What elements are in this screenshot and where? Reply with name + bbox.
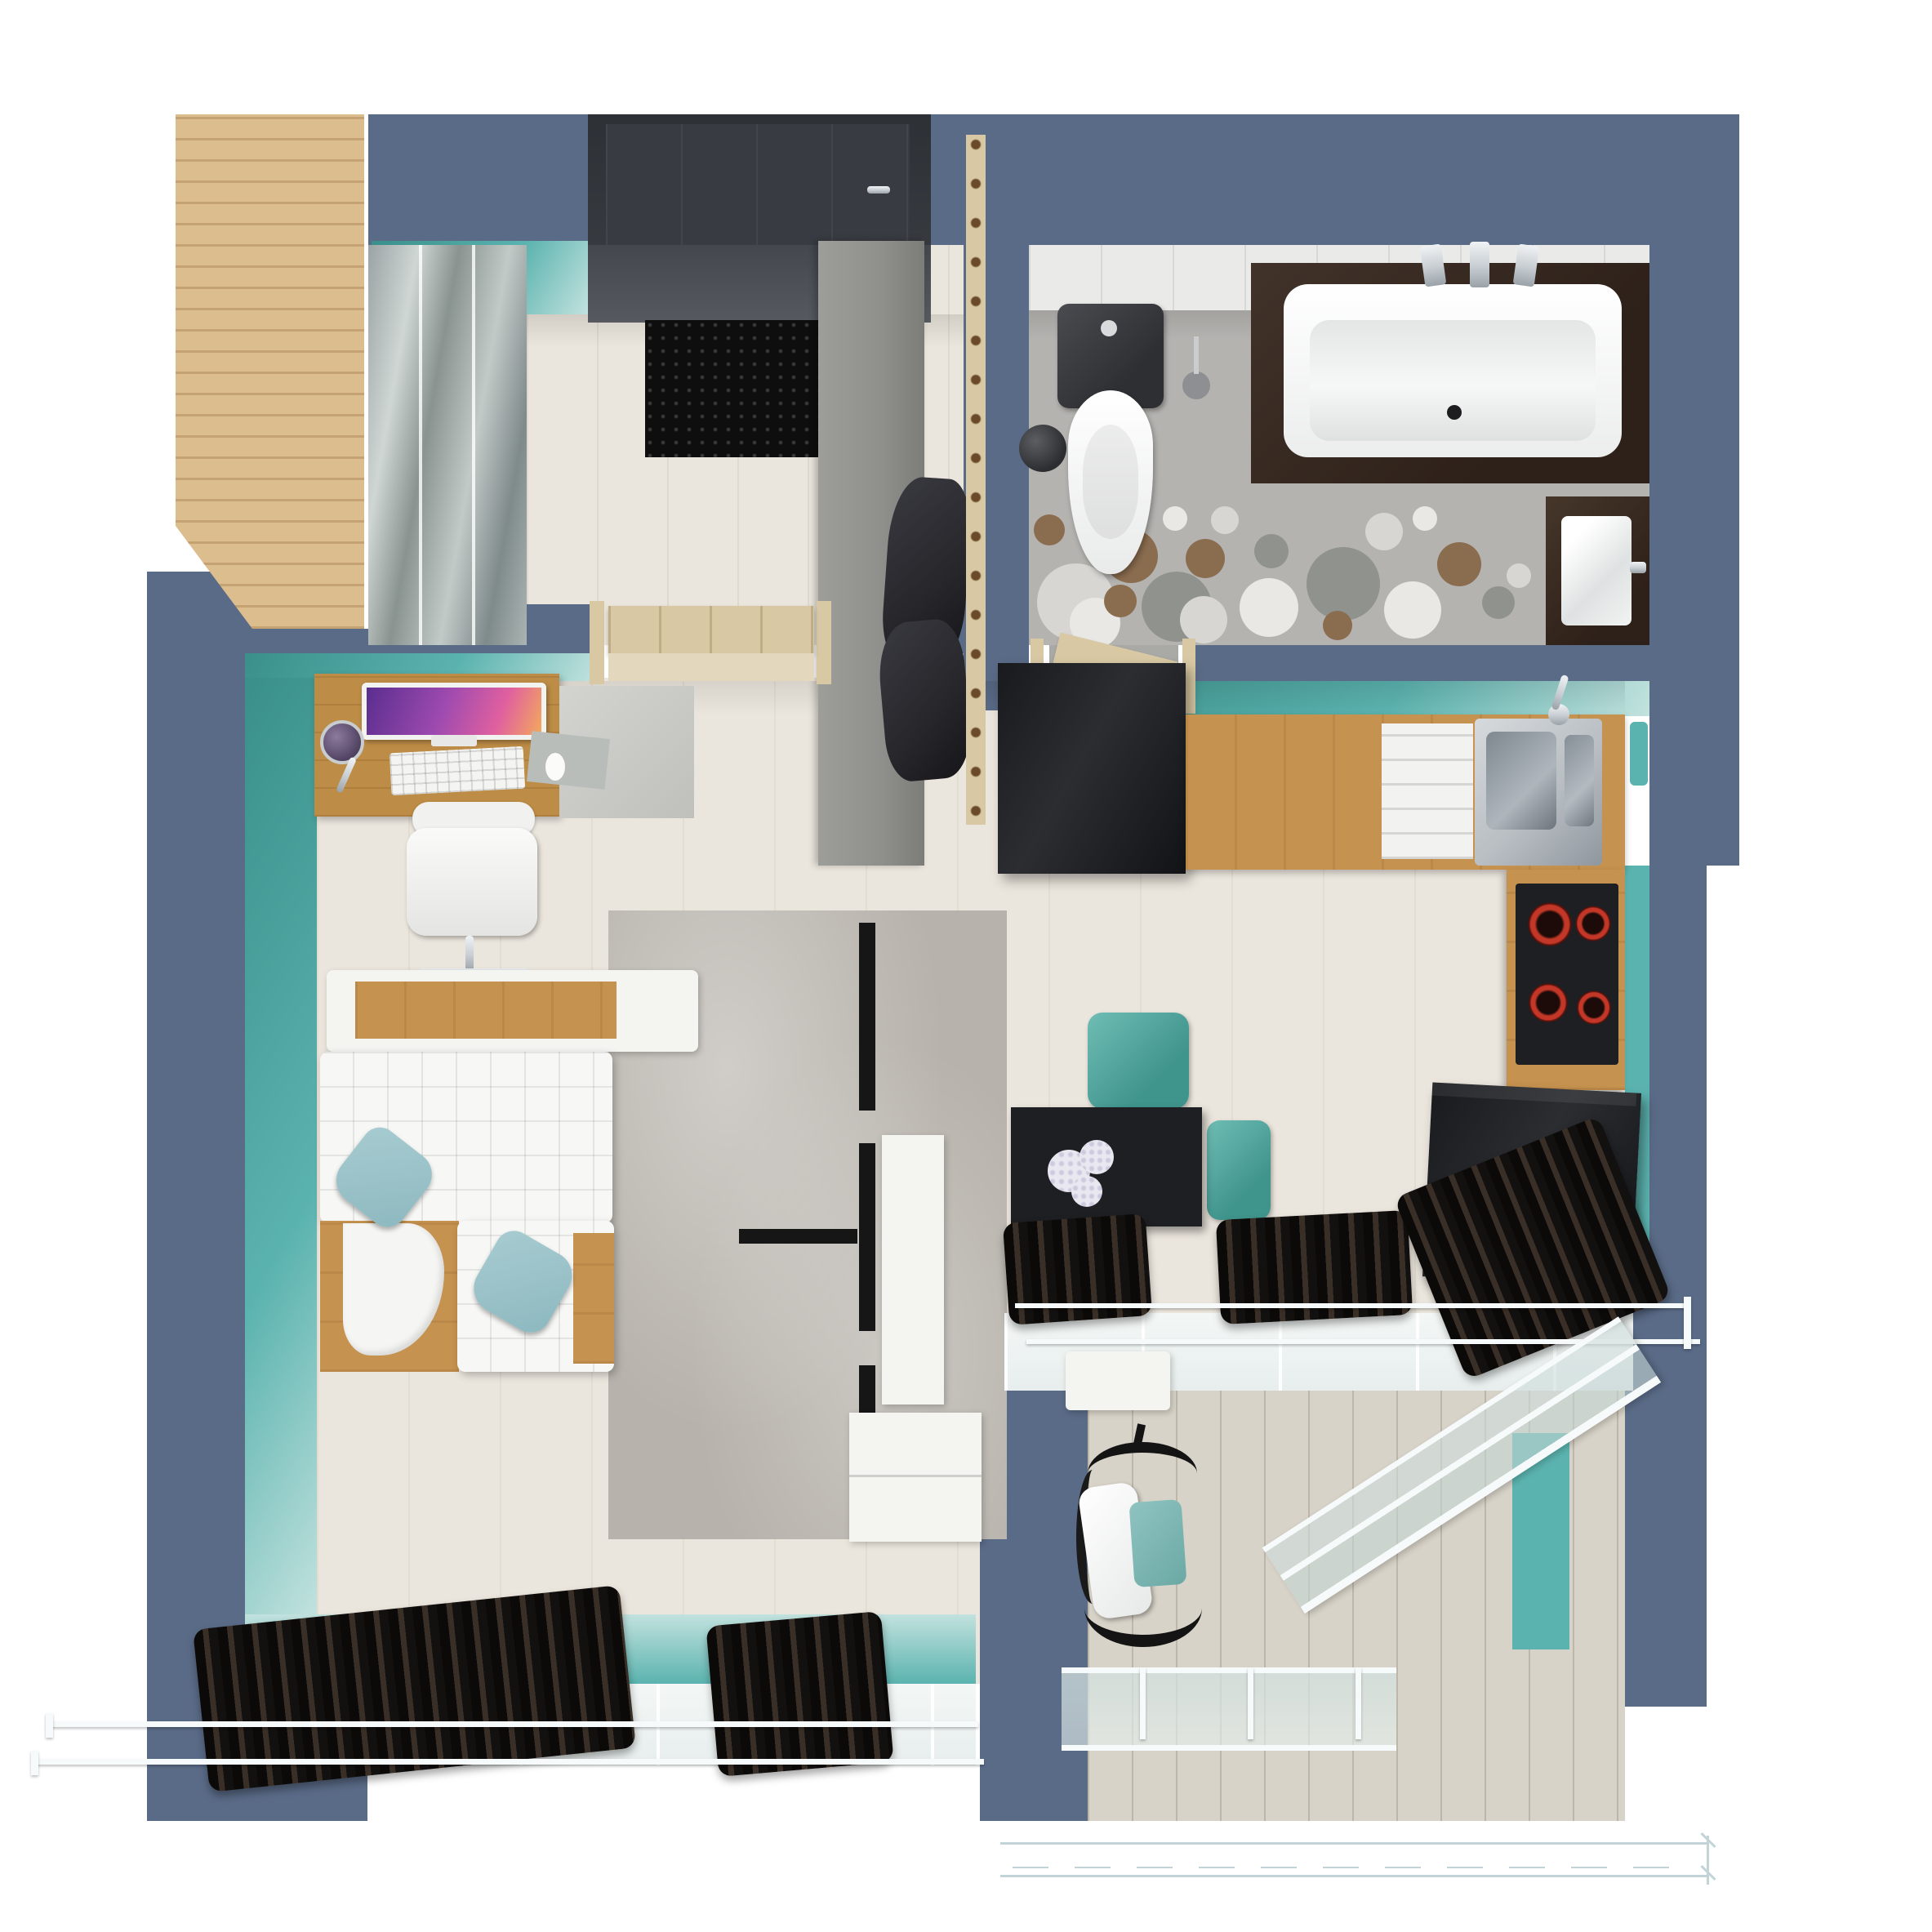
- bath-floor-circle: [1437, 542, 1481, 586]
- mirror-divider-2: [472, 245, 475, 645]
- entry-door-handle-icon: [867, 186, 890, 194]
- door-frame-left: [590, 601, 604, 684]
- bath-floor-circle: [1323, 611, 1352, 640]
- wood-wardrobe: [176, 114, 367, 629]
- bath-floor-circle: [1482, 586, 1515, 619]
- armchair-armrest: [573, 1233, 614, 1364]
- top-wall-left-segment: [367, 114, 588, 245]
- rod-bracket-icon-2: [31, 1751, 38, 1775]
- office-chair-seat: [407, 828, 537, 936]
- mirror-wardrobe: [368, 245, 527, 645]
- flower-centerpiece-2: [1080, 1140, 1114, 1174]
- dining-rod: [1015, 1303, 1689, 1308]
- toilet-brush: [1182, 372, 1210, 399]
- console-wood-inset: [355, 982, 617, 1039]
- living-teal-left: [245, 678, 317, 1617]
- dining-rod-bracket-icon: [1684, 1297, 1691, 1349]
- bath-floor-circle: [1254, 534, 1289, 568]
- balcony-railing-bottom: [1062, 1667, 1396, 1751]
- door-frame-right: [817, 601, 831, 684]
- office-chair-post: [465, 936, 474, 972]
- keyboard: [390, 746, 525, 796]
- desk-lamp-icon: [320, 720, 364, 764]
- vanity-sink: [1561, 516, 1632, 625]
- tv-panel-white: [882, 1135, 944, 1404]
- railing-post-icon: [1140, 1667, 1146, 1739]
- right-wall-bathroom: [1649, 114, 1739, 866]
- dimension-line-2: [1000, 1875, 1709, 1877]
- bath-floor-circle: [1384, 581, 1441, 639]
- bath-floor-circle: [1365, 513, 1403, 550]
- entry-door: [606, 124, 910, 256]
- curtain-dining-left: [1003, 1213, 1152, 1325]
- rug-stripe: [859, 1143, 875, 1331]
- hanging-coats-2: [875, 617, 975, 783]
- hanging-chair-blanket: [1128, 1499, 1186, 1587]
- curtain-rod: [47, 1721, 978, 1727]
- hob-burner: [1522, 977, 1574, 1029]
- sideboard-white: [849, 1413, 982, 1542]
- hob-burner: [1571, 985, 1617, 1031]
- open-door-leaf: [608, 606, 814, 653]
- bath-bottom-wall: [1192, 645, 1649, 683]
- bath-floor-circle: [1180, 596, 1227, 643]
- flower-centerpiece-3: [1071, 1176, 1102, 1207]
- dimension-line: [1000, 1842, 1709, 1845]
- mouse: [545, 753, 565, 781]
- floor-plan-canvas: [0, 0, 1932, 1932]
- sideboard-seam: [849, 1475, 982, 1477]
- curtain-rod-2: [33, 1759, 984, 1765]
- coat-rack: [966, 135, 986, 825]
- bath-floor-circle: [1240, 578, 1298, 637]
- bath-floor-circle: [1507, 563, 1531, 588]
- balcony-cabinet-white: [1066, 1351, 1170, 1410]
- sink-basin: [1486, 732, 1556, 830]
- waste-bin: [1019, 425, 1066, 472]
- flush-button-icon: [1101, 320, 1117, 336]
- dish-drainer: [1382, 723, 1473, 859]
- fridge: [998, 663, 1186, 874]
- bath-floor-circle: [1163, 506, 1187, 531]
- door-threshold: [608, 653, 814, 681]
- mouse-pad: [527, 731, 610, 790]
- bath-floor-circle: [1211, 506, 1239, 534]
- rod-bracket-icon: [46, 1713, 53, 1738]
- railing-post-icon-2: [1248, 1667, 1253, 1739]
- hob-burner: [1569, 900, 1617, 947]
- imac: [362, 683, 546, 740]
- top-wall-right-segment: [931, 114, 1739, 245]
- toilet-seat-line: [1083, 425, 1138, 539]
- rug-stripe: [739, 1229, 857, 1244]
- vanity-tap-icon: [1630, 562, 1646, 573]
- railing-post-icon-3: [1356, 1667, 1361, 1739]
- bath-floor-circle: [1307, 547, 1380, 621]
- mirror-divider: [419, 245, 422, 645]
- imac-stand: [431, 735, 477, 746]
- sink-basin-2: [1565, 735, 1594, 826]
- counter-bottle: [1630, 722, 1648, 786]
- bath-floor-circle: [1413, 506, 1437, 531]
- bathtub-basin: [1310, 320, 1596, 441]
- bath-floor-circle: [1186, 539, 1225, 578]
- teal-chair-2: [1207, 1120, 1271, 1220]
- curtain-right: [706, 1611, 893, 1777]
- bath-floor-circle: [1104, 585, 1137, 617]
- bath-floor-circle: [1034, 514, 1065, 545]
- bath-faucet-icon-2: [1470, 242, 1489, 287]
- rug-stripe: [859, 923, 875, 1111]
- toilet-brush-handle: [1194, 336, 1199, 374]
- teal-chair: [1088, 1013, 1189, 1109]
- dimension-dashes: [1013, 1867, 1682, 1868]
- bathtub-drain-icon: [1447, 405, 1462, 420]
